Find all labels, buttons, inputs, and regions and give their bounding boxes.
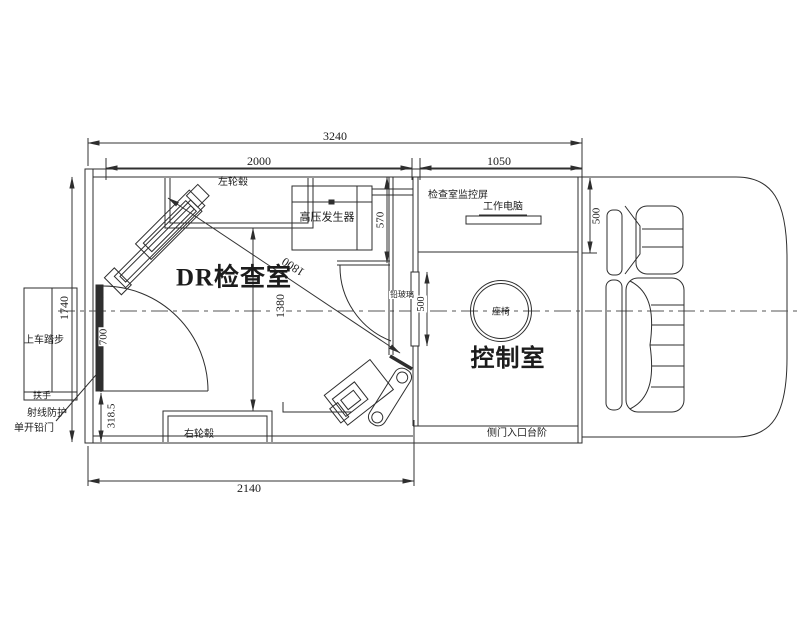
xray-tube-unit <box>283 360 415 429</box>
control-console <box>418 216 578 252</box>
handrail-label: 扶手 <box>33 392 51 401</box>
dim-door-to-rear: 318.5 <box>107 404 118 429</box>
dim-window-height: 500 <box>417 296 427 313</box>
work-computer-label: 工作电脑 <box>479 203 527 216</box>
operator-seat-label: 座椅 <box>492 308 510 317</box>
cab-seats <box>606 206 684 412</box>
inner-door-panel <box>390 356 412 369</box>
bench-seat-backrest <box>606 280 622 410</box>
vehicle-body-outline <box>85 169 787 443</box>
computer-desk <box>466 216 541 224</box>
hv-generator-label: 高压发生器 <box>300 213 355 224</box>
shield-door-label-line2: 单开铅门 <box>14 424 54 434</box>
dim-control-room-length: 1050 <box>487 155 511 167</box>
dim-generator-depth: 570 <box>376 211 387 230</box>
left-wheel-label: 左轮毂 <box>218 178 248 188</box>
dim-interior-width: 1740 <box>58 296 70 320</box>
dim-overall-length: 3240 <box>323 130 347 142</box>
monitor-screen-label: 检查室监控屏 <box>428 191 488 201</box>
side-entrance-step-label: 侧门入口台阶 <box>487 429 547 439</box>
lead-glass-label: 铅玻璃 <box>389 291 415 299</box>
driver-seat-cushion <box>625 206 640 274</box>
dim-console-depth: 500 <box>592 208 603 225</box>
door-swing-arc <box>103 286 208 391</box>
floor-plan-linework <box>0 0 800 623</box>
exam-room-title: DR检查室 <box>176 266 292 291</box>
dim-bottom-span: 2140 <box>237 482 261 494</box>
right-wheel-housing <box>163 411 272 442</box>
driver-seat-backrest <box>607 210 622 275</box>
lead-door <box>96 285 208 391</box>
boarding-steps-label: 上车踏步 <box>24 336 64 346</box>
dim-wheel-gap: 1380 <box>274 293 286 319</box>
control-room-title: 控制室 <box>471 347 546 371</box>
right-wheel-label: 右轮毂 <box>184 430 214 440</box>
dim-door-width: 700 <box>99 328 110 347</box>
dim-exam-room-length: 2000 <box>247 155 271 167</box>
shield-door-label-line1: 射线防护 <box>27 409 67 419</box>
floor-plan-canvas: 3240 2000 1050 1740 700 318.5 2140 1380 … <box>0 0 800 623</box>
